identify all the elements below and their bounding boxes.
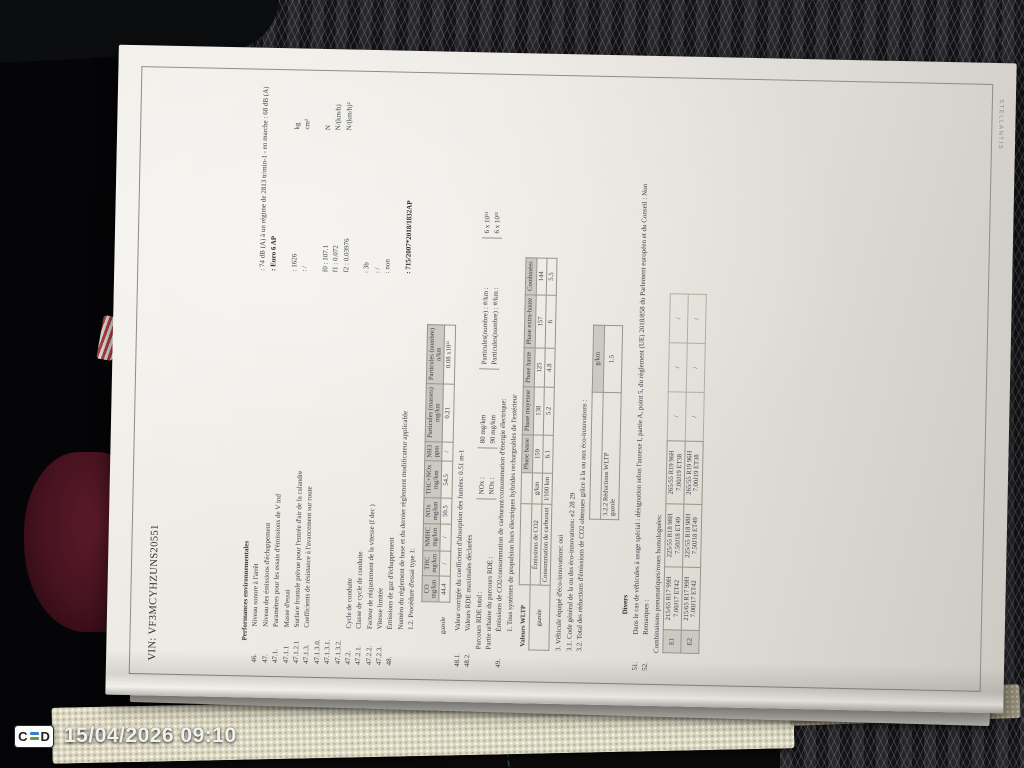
ced-logo-letter-c: C [18,730,27,743]
type1-emissions-table: COmg/km THCmg/km NMHCmg/km NOxmg/km THC+… [420,324,456,649]
timestamp-text: 15/04/2026 09:10 [64,724,237,748]
document-content: VIN: VF3MCYHZUNS20551 Performances envir… [114,50,1007,708]
tyre-wheel-table: E1 215/65 R17 99H7.00J17 ET42 225/55 R18… [662,293,706,654]
timestamp-overlay: C D 15/04/2026 09:10 [14,724,237,748]
ced-logo: C D [14,725,54,748]
document-body: Performances environnementales 46.Niveau… [239,78,711,671]
ced-logo-bars-icon [30,732,39,740]
coc-document-paper: STELLANTIS VIN: VF3MCYHZUNS20551 Perform… [105,45,1016,714]
wltp-table: Valeurs WLTP Phase basse Phase moyenne P… [517,257,557,651]
eco-reductions-table: g/km 3.2.2 Réductions WLTPgazole1.5 [589,325,622,521]
ced-logo-letter-d: D [41,730,50,743]
photo-scene: STELLANTIS VIN: VF3MCYHZUNS20551 Perform… [0,0,1024,768]
